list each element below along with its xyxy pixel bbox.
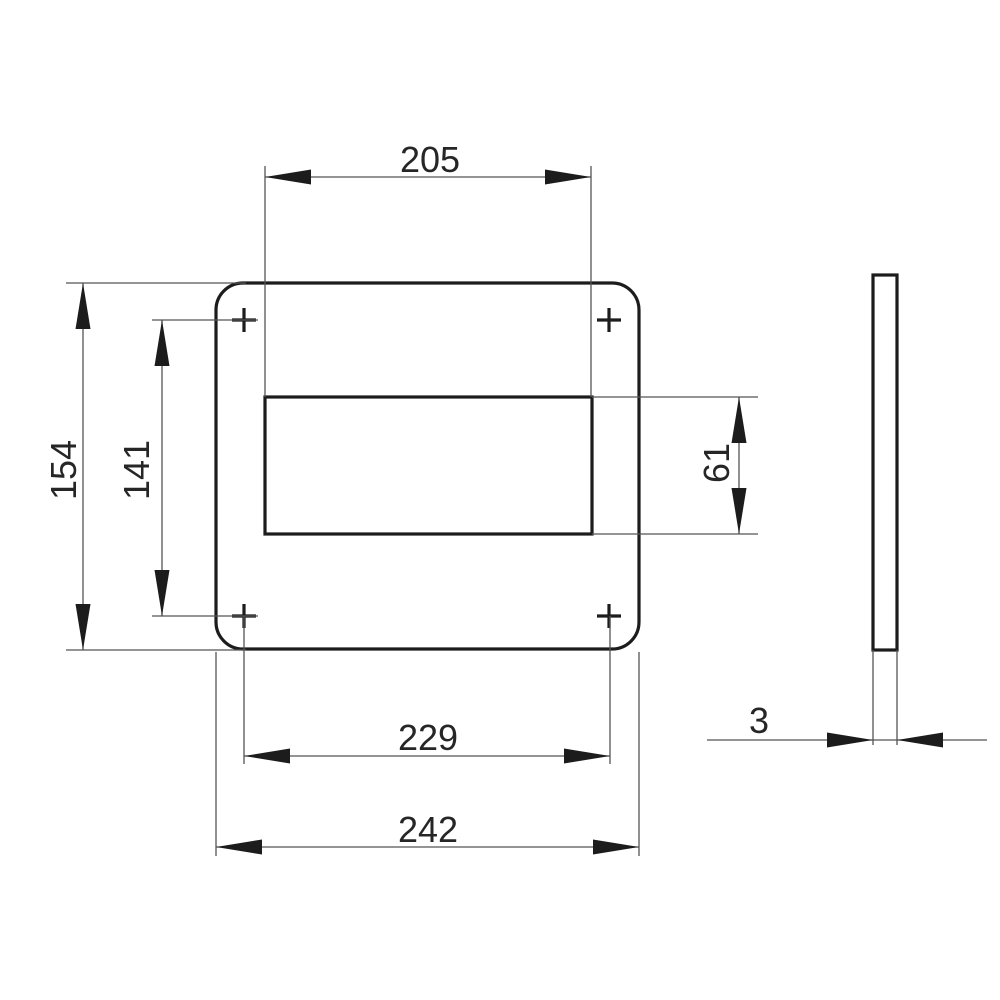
- arrowhead-top: [76, 283, 91, 329]
- cutout-opening: [265, 397, 592, 534]
- dimension-label-overall-width: 242: [398, 809, 458, 850]
- drawing-svg: 205 154 141 61: [0, 0, 1000, 1000]
- arrowhead-left: [216, 840, 262, 855]
- dimension-label-cutout-height: 61: [696, 443, 737, 483]
- arrowhead-right: [564, 749, 610, 764]
- dimension-label-hole-spacing-horizontal: 229: [398, 717, 458, 758]
- front-view: [216, 283, 639, 649]
- dimension-label-hole-spacing-vertical: 141: [116, 440, 157, 500]
- dimension-thickness: 3: [707, 650, 987, 748]
- dimension-label-thickness: 3: [749, 700, 769, 741]
- side-view: [873, 275, 897, 650]
- arrowhead-top: [155, 320, 170, 366]
- arrowhead-right: [593, 840, 639, 855]
- dimension-label-overall-height: 154: [43, 440, 84, 500]
- arrowhead-left: [827, 733, 873, 748]
- arrowhead-bottom: [155, 570, 170, 616]
- technical-drawing-canvas: 205 154 141 61: [0, 0, 1000, 1000]
- arrowhead-right: [545, 170, 591, 185]
- arrowhead-left: [265, 170, 311, 185]
- arrowhead-top: [732, 397, 747, 443]
- side-plate-outline: [873, 275, 897, 650]
- arrowhead-bottom: [76, 604, 91, 650]
- dimension-label-cutout-width: 205: [400, 139, 460, 180]
- arrowhead-bottom: [732, 488, 747, 534]
- arrowhead-left: [244, 749, 290, 764]
- arrowhead-right: [897, 733, 943, 748]
